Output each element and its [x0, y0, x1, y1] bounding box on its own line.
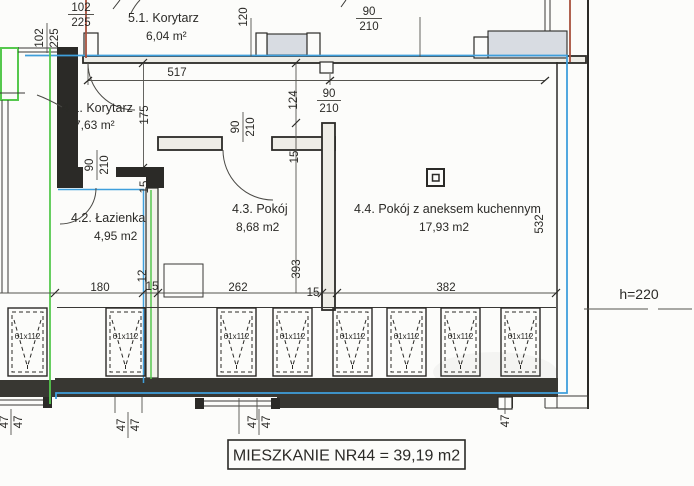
dim-225-den: 225: [71, 17, 90, 29]
room-name-43: 4.3. Pokój: [232, 202, 288, 216]
dim-210-den: 210: [245, 117, 257, 136]
dim-47-den: 47: [130, 419, 142, 432]
dim-12-rotated: 12: [137, 270, 149, 283]
room-area-42: 4,95 m2: [94, 229, 138, 243]
dim-102-num: 102: [71, 2, 90, 14]
dim-517: 517: [167, 67, 186, 79]
radiator-size-label: 61x112: [340, 332, 366, 341]
room-area-41: 7,63 m²: [74, 118, 115, 132]
window1-post-left: [256, 33, 267, 56]
dim-15: 15: [289, 151, 301, 164]
window1-glass: [267, 34, 308, 55]
dim-210-den: 210: [319, 103, 338, 115]
dim-102-num: 102: [34, 28, 46, 47]
dim-47-den: 47: [13, 416, 25, 429]
apartment-summary-text: MIESZKANIE NR44 = 39,19 m2: [233, 448, 460, 465]
bath-wall-corner: [57, 167, 83, 188]
dim-90-num: 90: [84, 159, 96, 172]
dim-262: 262: [228, 282, 247, 294]
radiator-size-label: 61x112: [508, 332, 534, 341]
dim-47-d: 47: [500, 415, 512, 428]
radiator-size-label: 61x112: [280, 332, 306, 341]
door-notch-44: [320, 62, 333, 73]
dim-532-rotated: 532: [534, 214, 546, 233]
dim-180: 180: [90, 282, 109, 294]
dim-15-b: 15: [307, 287, 320, 299]
dim-height-note: h=220: [619, 286, 659, 302]
dim-124: 124: [288, 90, 300, 110]
radiator-size-label: 61x112: [15, 332, 41, 341]
dim-393: 393: [291, 259, 303, 278]
bottom-wall-lower-slab: [277, 396, 513, 408]
bottom-wall-left-slab: [0, 380, 55, 397]
dim-47-num: 47: [116, 419, 128, 432]
dim-90-num: 90: [363, 6, 376, 18]
room-area-44: 17,93 m2: [419, 220, 469, 234]
radiator-size-label: 61x112: [224, 332, 250, 341]
radiator-size-label: 61x112: [394, 332, 420, 341]
floor-plan-page: 61x112 61x112 61x112 61x112 61x112: [0, 0, 694, 486]
dim-124-rotated: 124: [288, 90, 300, 110]
floor-plan-svg: 61x112 61x112 61x112 61x112 61x112: [0, 0, 694, 486]
window1-post-right: [307, 33, 320, 56]
room44-west-wall: [322, 123, 335, 310]
room-name-44: 4.4. Pokój z aneksem kuchennym: [354, 202, 541, 216]
dim-90-num: 90: [323, 88, 336, 100]
paper-background: [0, 0, 694, 486]
dim-175: 175: [139, 105, 151, 124]
dim-47-num: 47: [247, 416, 259, 429]
dim-90-num: 90: [230, 121, 242, 134]
dim-175-rotated: 175: [139, 105, 151, 124]
window-mid-post-right: [271, 398, 280, 409]
dim-15-rotated-b: 15: [289, 151, 301, 164]
dim-15: 15: [139, 181, 151, 194]
dim-47-den: 47: [261, 416, 273, 429]
dim-210-den: 210: [359, 21, 378, 33]
radiator-size-label: 61x112: [448, 332, 474, 341]
room-area-43: 8,68 m2: [236, 220, 280, 234]
room-area-51: 6,04 m²: [146, 29, 187, 43]
room-name-42: 4.2. Łazienka: [71, 211, 145, 225]
dim-532: 532: [534, 214, 546, 233]
window-mid-post-left: [195, 398, 204, 409]
dim-15-rotated-a: 15: [139, 181, 151, 194]
room-name-51: 5.1. Korytarz: [128, 11, 199, 25]
radiator-size-label: 61x112: [113, 332, 139, 341]
dim-210-den: 210: [99, 155, 111, 174]
dim-47: 47: [500, 415, 512, 428]
dim-120: 120: [238, 7, 250, 26]
room43-north-wall-west: [158, 137, 222, 150]
bottom-wall-band: [55, 378, 558, 397]
dim-393-rotated: 393: [291, 259, 303, 278]
dim-382: 382: [436, 282, 455, 294]
dim-120-rotated: 120: [238, 7, 250, 26]
room-name-41: 4.1. Korytarz: [62, 101, 133, 115]
window2-glass: [488, 31, 567, 58]
dim-12: 12: [137, 270, 149, 283]
dim-225-den: 225: [49, 28, 61, 47]
dim-47-num: 47: [0, 416, 11, 429]
